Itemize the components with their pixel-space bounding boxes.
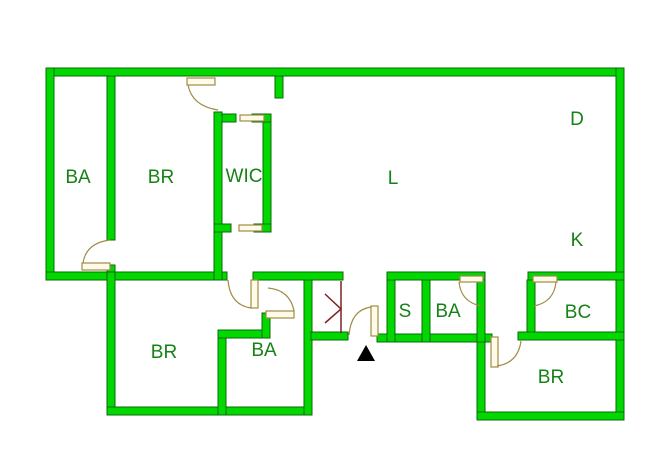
- door-arc-br-lowerleft: [228, 280, 251, 308]
- room-label-bc: BC: [565, 302, 591, 323]
- doors: [82, 78, 557, 367]
- room-label-ba-hall: BA: [435, 301, 461, 322]
- room-label-kitchen: K: [571, 230, 584, 251]
- room-label-living: L: [388, 168, 399, 189]
- door-leaf-bc: [533, 276, 557, 282]
- wall-storage-right: [422, 280, 430, 342]
- room-label-ba-upper-left: BA: [65, 167, 91, 188]
- wall-wic-bottom-stub-left: [214, 224, 231, 232]
- wall-bc-left: [527, 280, 535, 334]
- chevron-marker: [325, 294, 341, 323]
- room-label-dining: D: [570, 109, 584, 130]
- door-leaf-br-upper: [187, 78, 215, 85]
- wall-lowerleft-left: [107, 272, 115, 415]
- wall-br-ba-divider-lower: [218, 330, 226, 415]
- door-leaf-wic-top: [240, 115, 264, 121]
- wall-br-wic-divider: [214, 112, 222, 280]
- door-arc-ba-lowerleft: [268, 288, 294, 311]
- wall-entry-left: [304, 280, 312, 415]
- wall-wic-right: [263, 116, 271, 232]
- room-label-wic: WIC: [226, 166, 263, 187]
- door-leaf-ba-hall: [460, 276, 483, 282]
- room-label-br-upper: BR: [148, 167, 174, 188]
- wall-exterior-right: [616, 68, 624, 420]
- wall-exterior-left: [46, 68, 54, 280]
- door-leaf-ba-upper: [82, 263, 110, 270]
- room-label-br-lower-right: BR: [538, 367, 564, 388]
- wall-exterior-top: [46, 68, 624, 76]
- room-label-ba-lower-left: BA: [251, 340, 277, 361]
- room-label-br-lower-left: BR: [151, 342, 177, 363]
- wall-bc-bottom: [518, 332, 624, 340]
- wall-mid-left: [46, 272, 227, 280]
- wall-wic-top-stub-left: [222, 114, 236, 122]
- room-label-storage: S: [399, 301, 412, 322]
- wall-entry-bottom-left: [311, 332, 348, 340]
- door-leaf-wic-bottom: [239, 225, 262, 231]
- floor-plan-image: BA BR WIC L D K BR BA S BA BC BR: [0, 0, 665, 465]
- entrance-triangle: [357, 345, 375, 361]
- door-leaf-br-lowerleft: [251, 280, 258, 308]
- wall-ba-hall-right: [477, 280, 485, 342]
- door-arc-ba-upper: [83, 240, 110, 263]
- door-leaf-entry: [371, 306, 378, 336]
- door-arc-br-upper: [188, 85, 218, 110]
- door-arc-br-lowerright: [497, 341, 521, 366]
- room-labels: BA BR WIC L D K BR BA S BA BC BR: [65, 109, 591, 388]
- floor-plan-page: BA BR WIC L D K BR BA S BA BC BR: [0, 0, 665, 465]
- wall-mid-center: [253, 272, 343, 280]
- wall-br-lowerright-left: [477, 342, 485, 420]
- door-arc-bc: [534, 282, 556, 306]
- wall-ba-br-divider-upper: [107, 76, 115, 240]
- door-leaf-br-lowerright: [491, 337, 498, 367]
- wall-lowerleft-bottom: [107, 407, 311, 415]
- door-leaf-ba-lowerleft: [266, 311, 294, 318]
- wall-top-stub: [275, 76, 283, 98]
- markers: [325, 281, 375, 361]
- wall-br-lowerright-bottom: [477, 412, 624, 420]
- door-arc-entry: [349, 307, 371, 335]
- wall-storage-left: [387, 280, 395, 342]
